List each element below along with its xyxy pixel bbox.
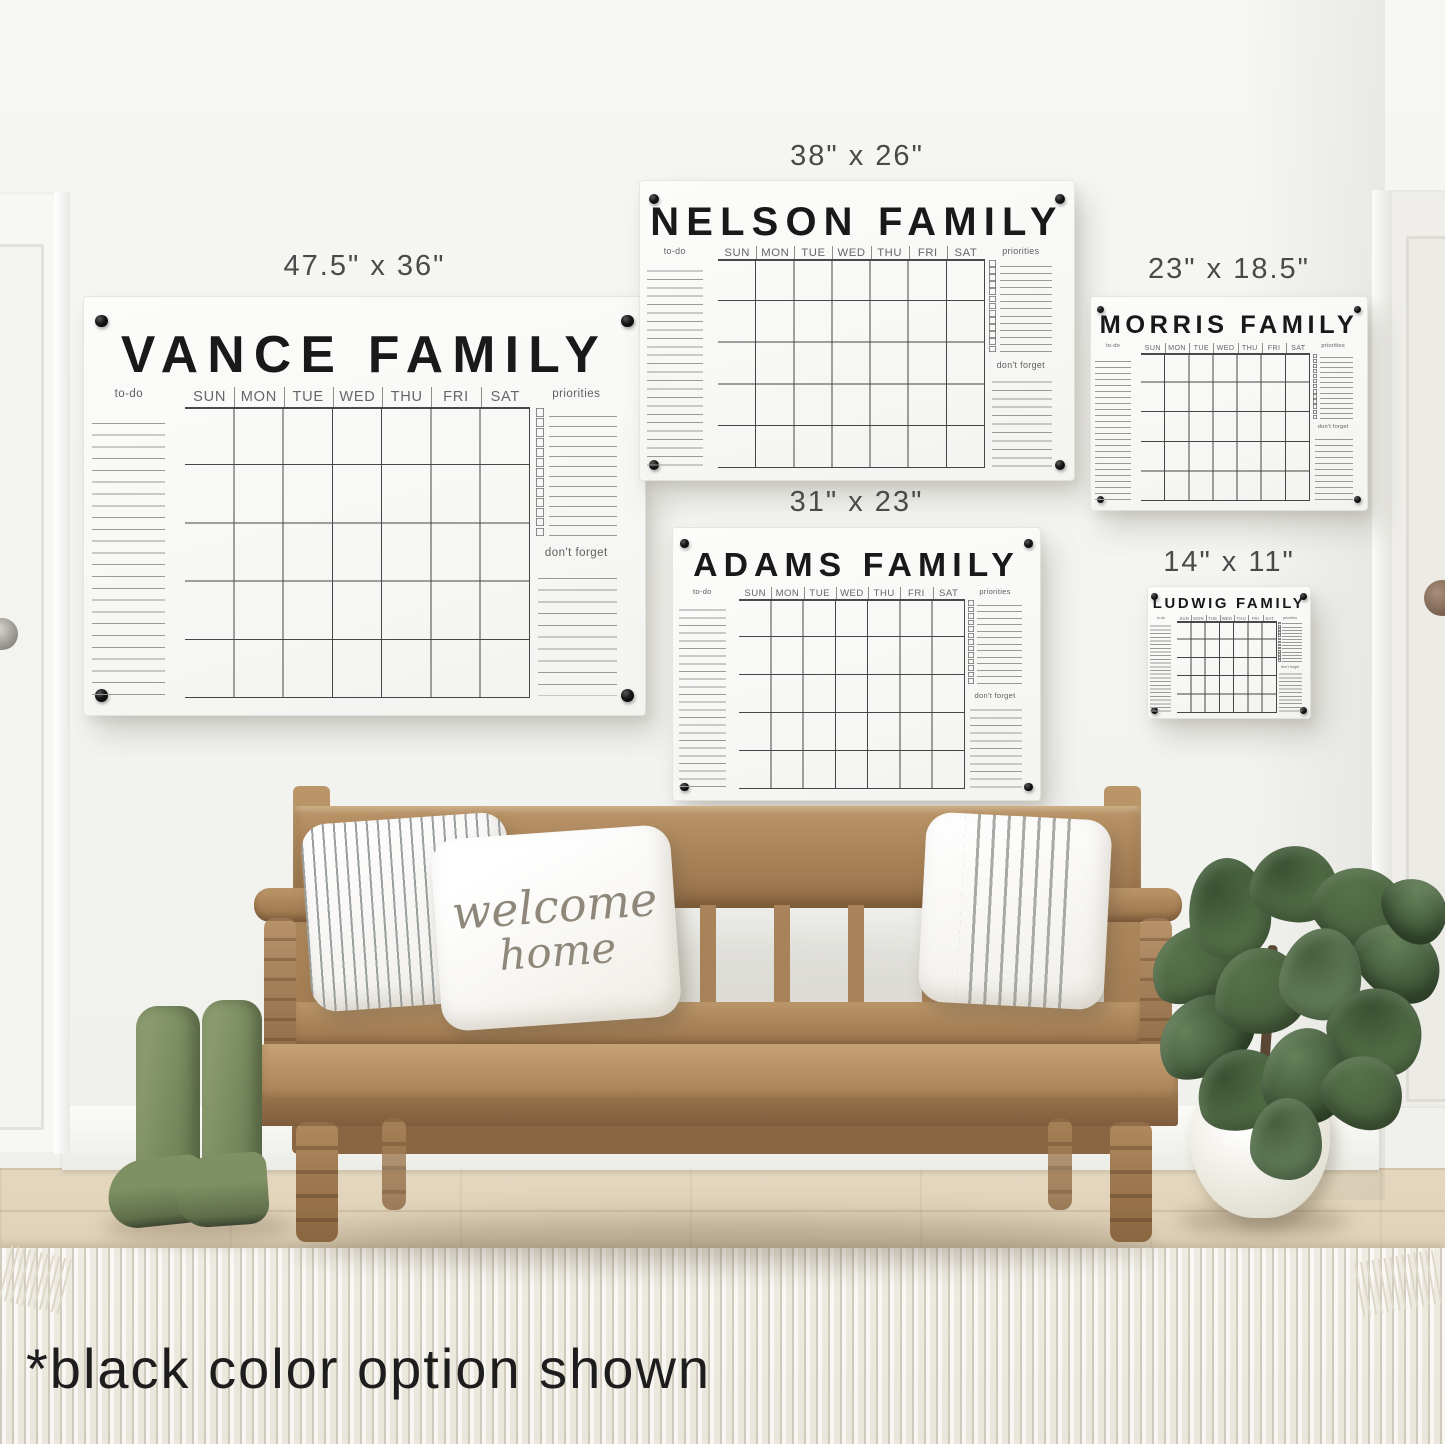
priority-row	[989, 275, 1052, 280]
checkbox-icon	[1313, 415, 1317, 419]
priority-row	[989, 283, 1052, 288]
priority-row	[536, 519, 617, 527]
checkbox-icon	[1278, 653, 1281, 656]
priority-line	[977, 611, 1021, 612]
priority-row	[536, 449, 617, 457]
priority-line	[549, 466, 617, 467]
checkbox-icon	[1313, 410, 1317, 414]
day-header-row: SUNMONTUEWEDTHUFRISAT	[1177, 616, 1277, 621]
day-label-tue: TUE	[284, 389, 333, 406]
calendar-board-vance: VANCE FAMILYto-doSUNMONTUEWEDTHUFRISATpr…	[84, 297, 645, 715]
checkbox-icon	[536, 428, 545, 437]
bench-apron	[292, 1122, 1142, 1154]
priority-row	[1313, 385, 1353, 389]
priority-row	[1278, 656, 1301, 658]
calendar-board-adams: ADAMS FAMILYto-doSUNMONTUEWEDTHUFRISATpr…	[673, 528, 1040, 800]
priority-row	[1278, 641, 1301, 643]
priority-row	[536, 459, 617, 467]
day-label-thu: THU	[871, 247, 909, 259]
day-label-wed: WED	[1213, 344, 1237, 353]
checkbox-icon	[1313, 359, 1317, 363]
day-label-sun: SUN	[1177, 616, 1191, 621]
checkbox-icon	[1313, 354, 1317, 358]
priority-line	[977, 618, 1021, 619]
priorities-label: priorities	[989, 246, 1052, 256]
priority-line	[1320, 418, 1353, 419]
size-label-morris: 23" x 18.5"	[1091, 253, 1367, 286]
priority-row	[968, 679, 1021, 684]
priority-row	[989, 333, 1052, 338]
day-label-thu: THU	[868, 588, 900, 599]
priority-row	[1313, 410, 1353, 414]
checkbox-icon	[536, 408, 545, 417]
day-label-sun: SUN	[1141, 344, 1165, 353]
checkbox-icon	[1313, 379, 1317, 383]
checkbox-icon	[968, 652, 974, 658]
bench-floor-shadow	[290, 1218, 1160, 1264]
priority-row	[968, 646, 1021, 651]
priority-line	[1320, 408, 1353, 409]
dont-forget-lines	[992, 374, 1053, 467]
day-label-fri: FRI	[909, 247, 947, 259]
priority-line	[1320, 413, 1353, 414]
todo-label: to-do	[92, 388, 165, 400]
checkbox-icon	[989, 281, 996, 288]
priority-row	[989, 340, 1052, 345]
checkbox-icon	[1313, 389, 1317, 393]
checkbox-icon	[968, 633, 974, 639]
dont-forget-lines	[538, 567, 617, 697]
day-label-mon: MON	[756, 247, 794, 259]
checkbox-icon	[1278, 631, 1281, 634]
priority-line	[549, 506, 617, 507]
todo-lines	[1150, 623, 1171, 712]
priority-row	[989, 261, 1052, 266]
checkbox-icon	[536, 488, 545, 497]
priority-line	[1000, 316, 1052, 317]
priority-line	[1000, 344, 1052, 345]
left-door-panel	[0, 244, 44, 1130]
priority-row	[989, 318, 1052, 323]
priorities-checklist	[1278, 622, 1301, 662]
priority-row	[1278, 635, 1301, 637]
priority-line	[1320, 398, 1353, 399]
day-label-sat: SAT	[947, 247, 985, 259]
checkbox-icon	[989, 338, 996, 345]
checkbox-icon	[536, 478, 545, 487]
bench-seat	[260, 1044, 1178, 1106]
priority-row	[1313, 395, 1353, 399]
day-label-mon: MON	[1191, 616, 1205, 621]
priority-line	[549, 426, 617, 427]
calendar-title: NELSON FAMILY	[640, 200, 1074, 245]
priority-row	[1278, 653, 1301, 655]
priority-line	[1000, 273, 1052, 274]
striped-pillow-right	[917, 811, 1113, 1010]
checkbox-icon	[968, 659, 974, 665]
checkbox-icon	[1313, 404, 1317, 408]
todo-label: to-do	[1150, 616, 1171, 620]
mount-screw-br	[1055, 460, 1065, 470]
day-label-fri: FRI	[1248, 616, 1262, 621]
priority-line	[977, 605, 1021, 606]
priority-row	[1278, 644, 1301, 646]
bench-lower-rail	[293, 1002, 1141, 1048]
checkbox-icon	[968, 678, 974, 684]
day-label-mon: MON	[771, 588, 803, 599]
priority-row	[1313, 369, 1353, 373]
day-label-mon: MON	[234, 389, 283, 406]
priorities-checklist	[968, 601, 1021, 684]
priority-row	[1278, 628, 1301, 630]
caption-text: *black color option shown	[26, 1336, 711, 1401]
calendar-board-morris: MORRIS FAMILYto-doSUNMONTUEWEDTHUFRISATp…	[1091, 297, 1367, 510]
checkbox-icon	[968, 620, 974, 626]
checkbox-icon	[536, 458, 545, 467]
priority-row	[536, 429, 617, 437]
priority-row	[968, 607, 1021, 612]
checkbox-icon	[989, 267, 996, 274]
priority-line	[977, 624, 1021, 625]
day-label-sun: SUN	[739, 588, 771, 599]
priority-row	[968, 614, 1021, 619]
priority-row	[968, 601, 1021, 606]
calendar-title: ADAMS FAMILY	[673, 546, 1040, 585]
month-grid	[718, 259, 985, 468]
checkbox-icon	[968, 639, 974, 645]
calendar-board-ludwig: LUDWIG FAMILYto-doSUNMONTUEWEDTHUFRISATp…	[1148, 587, 1310, 718]
checkbox-icon	[1313, 374, 1317, 378]
calendar-title: MORRIS FAMILY	[1091, 311, 1367, 340]
todo-lines	[679, 603, 727, 788]
priority-row	[536, 479, 617, 487]
calendar-title: LUDWIG FAMILY	[1148, 596, 1310, 612]
checkbox-icon	[989, 317, 996, 324]
day-label-tue: TUE	[1189, 344, 1213, 353]
priority-row	[1278, 660, 1301, 662]
checkbox-icon	[989, 324, 996, 331]
checkbox-icon	[1278, 641, 1281, 644]
priorities-label: priorities	[968, 587, 1021, 596]
checkbox-icon	[968, 607, 974, 613]
priority-row	[968, 627, 1021, 632]
priority-line	[549, 535, 617, 536]
day-label-sat: SAT	[933, 588, 965, 599]
rain-boot-right	[172, 1000, 292, 1236]
priority-row	[989, 311, 1052, 316]
day-label-sun: SUN	[718, 247, 756, 259]
dont-forget-label: don't forget	[536, 547, 617, 559]
priorities-label: priorities	[1313, 343, 1353, 349]
priority-line	[977, 650, 1021, 651]
dont-forget-lines	[1279, 671, 1302, 712]
priority-row	[536, 499, 617, 507]
priorities-checklist	[1313, 354, 1353, 419]
priority-row	[1278, 650, 1301, 652]
priority-row	[536, 489, 617, 497]
priority-line	[549, 525, 617, 526]
pillow-text-home: home	[498, 926, 618, 978]
priority-line	[1320, 377, 1353, 378]
checkbox-icon	[1313, 394, 1317, 398]
priority-line	[977, 657, 1021, 658]
checkbox-icon	[536, 438, 545, 447]
checkbox-icon	[536, 418, 545, 427]
priority-line	[549, 476, 617, 477]
priority-row	[1313, 405, 1353, 409]
priority-row	[1313, 354, 1353, 358]
checkbox-icon	[1278, 622, 1281, 625]
priority-line	[1000, 280, 1052, 281]
day-label-sat: SAT	[481, 389, 530, 406]
todo-lines	[647, 263, 703, 466]
product-photo-scene: 47.5" x 36"VANCE FAMILYto-doSUNMONTUEWED…	[0, 0, 1445, 1444]
priority-row	[1313, 415, 1353, 419]
priority-row	[989, 325, 1052, 330]
month-grid	[185, 407, 530, 699]
day-header-row: SUNMONTUEWEDTHUFRISAT	[718, 247, 985, 259]
day-label-sun: SUN	[185, 389, 234, 406]
priority-line	[1320, 357, 1353, 358]
priority-row	[536, 439, 617, 447]
checkbox-icon	[1278, 638, 1281, 641]
day-label-tue: TUE	[1206, 616, 1220, 621]
priorities-label: priorities	[536, 388, 617, 400]
day-label-mon: MON	[1165, 344, 1189, 353]
mount-screw-br	[1354, 496, 1361, 503]
priority-line	[1320, 382, 1353, 383]
mount-screw-br	[621, 689, 634, 702]
checkbox-icon	[968, 646, 974, 652]
day-label-tue: TUE	[804, 588, 836, 599]
priority-row	[1278, 625, 1301, 627]
checkbox-icon	[968, 613, 974, 619]
priority-line	[1320, 372, 1353, 373]
day-label-thu: THU	[1234, 616, 1248, 621]
checkbox-icon	[1278, 656, 1281, 659]
day-header-row: SUNMONTUEWEDTHUFRISAT	[185, 389, 530, 406]
checkbox-icon	[989, 260, 996, 267]
priority-row	[536, 419, 617, 427]
dont-forget-lines	[970, 703, 1021, 787]
day-header-row: SUNMONTUEWEDTHUFRISAT	[739, 588, 965, 599]
dont-forget-label: don't forget	[1278, 665, 1301, 669]
priority-row	[989, 290, 1052, 295]
priority-row	[536, 409, 617, 417]
todo-label: to-do	[679, 587, 727, 596]
calendar-board-nelson: NELSON FAMILYto-doSUNMONTUEWEDTHUFRISATp…	[640, 181, 1074, 480]
priority-row	[1313, 390, 1353, 394]
priority-line	[549, 416, 617, 417]
checkbox-icon	[1313, 364, 1317, 368]
priority-line	[549, 456, 617, 457]
priority-line	[977, 631, 1021, 632]
todo-label: to-do	[647, 246, 703, 256]
priority-line	[549, 436, 617, 437]
day-label-sat: SAT	[1263, 616, 1277, 621]
checkbox-icon	[1313, 384, 1317, 388]
month-grid	[1141, 353, 1311, 502]
checkbox-icon	[1278, 634, 1281, 637]
checkbox-icon	[1278, 644, 1281, 647]
checkbox-icon	[989, 296, 996, 303]
todo-lines	[1095, 356, 1131, 501]
dont-forget-lines	[1315, 434, 1354, 500]
checkbox-icon	[536, 508, 545, 517]
day-header-row: SUNMONTUEWEDTHUFRISAT	[1141, 344, 1311, 353]
priority-row	[536, 529, 617, 537]
dont-forget-label: don't forget	[989, 360, 1052, 370]
boot-foot	[174, 1151, 271, 1229]
checkbox-icon	[968, 600, 974, 606]
priority-line	[549, 446, 617, 447]
checkbox-icon	[1313, 399, 1317, 403]
day-label-wed: WED	[333, 389, 382, 406]
checkbox-icon	[1278, 659, 1281, 662]
checkbox-icon	[536, 468, 545, 477]
priority-line	[977, 663, 1021, 664]
priority-line	[549, 486, 617, 487]
priority-row	[968, 640, 1021, 645]
dont-forget-label: don't forget	[968, 691, 1021, 700]
day-label-wed: WED	[832, 247, 870, 259]
checkbox-icon	[1278, 647, 1281, 650]
priority-line	[1000, 301, 1052, 302]
day-label-fri: FRI	[900, 588, 932, 599]
day-label-thu: THU	[1238, 344, 1262, 353]
priority-line	[1000, 308, 1052, 309]
priority-row	[968, 666, 1021, 671]
checkbox-icon	[536, 498, 545, 507]
welcome-home-pillow: welcome home	[430, 824, 683, 1032]
priority-row	[989, 268, 1052, 273]
priority-line	[549, 496, 617, 497]
checkbox-icon	[989, 274, 996, 281]
priorities-label: priorities	[1278, 616, 1301, 620]
left-door-casing	[54, 192, 70, 1154]
day-label-fri: FRI	[1262, 344, 1286, 353]
day-label-fri: FRI	[431, 389, 480, 406]
day-label-sat: SAT	[1286, 344, 1310, 353]
priority-line	[977, 676, 1021, 677]
priority-line	[1320, 362, 1353, 363]
dont-forget-label: don't forget	[1313, 424, 1353, 430]
priority-line	[1282, 661, 1302, 662]
priority-line	[1320, 403, 1353, 404]
priority-row	[1313, 379, 1353, 383]
priority-row	[989, 347, 1052, 352]
size-label-adams: 31" x 23"	[673, 486, 1040, 519]
priority-row	[1313, 359, 1353, 363]
priority-row	[989, 304, 1052, 309]
day-label-wed: WED	[1220, 616, 1234, 621]
priority-line	[977, 644, 1021, 645]
day-label-thu: THU	[382, 389, 431, 406]
priority-row	[1313, 400, 1353, 404]
checkbox-icon	[989, 288, 996, 295]
priority-line	[1000, 287, 1052, 288]
priority-line	[1320, 367, 1353, 368]
left-door	[0, 192, 70, 1154]
size-label-vance: 47.5" x 36"	[84, 250, 645, 283]
priority-line	[1000, 337, 1052, 338]
day-label-wed: WED	[836, 588, 868, 599]
checkbox-icon	[968, 665, 974, 671]
priority-line	[1000, 323, 1052, 324]
bench-leg-back-left	[382, 1118, 406, 1210]
priority-row	[1278, 622, 1301, 624]
priority-row	[968, 653, 1021, 658]
checkbox-icon	[989, 331, 996, 338]
priority-row	[536, 509, 617, 517]
month-grid	[1177, 621, 1277, 712]
checkbox-icon	[1278, 628, 1281, 631]
priority-row	[1278, 647, 1301, 649]
month-grid	[739, 599, 965, 789]
priority-line	[1000, 351, 1052, 352]
priority-line	[977, 637, 1021, 638]
todo-lines	[92, 412, 165, 696]
priority-line	[1320, 393, 1353, 394]
checkbox-icon	[536, 518, 545, 527]
bench-leg-front-left	[296, 1122, 338, 1242]
day-label-tue: TUE	[794, 247, 832, 259]
priority-row	[968, 620, 1021, 625]
checkbox-icon	[968, 626, 974, 632]
priority-row	[968, 633, 1021, 638]
bench-leg-back-right	[1048, 1118, 1072, 1210]
checkbox-icon	[968, 672, 974, 678]
todo-label: to-do	[1095, 343, 1131, 349]
priority-line	[1320, 387, 1353, 388]
checkbox-icon	[536, 528, 545, 537]
checkbox-icon	[536, 448, 545, 457]
priority-row	[1278, 631, 1301, 633]
priority-row	[1278, 638, 1301, 640]
priority-line	[549, 516, 617, 517]
fiddle-leaf-fig-plant	[1130, 840, 1420, 1240]
checkbox-icon	[1278, 650, 1281, 653]
priority-line	[1000, 266, 1052, 267]
size-label-nelson: 38" x 26"	[640, 140, 1074, 173]
priority-row	[989, 297, 1052, 302]
priority-row	[1313, 364, 1353, 368]
priority-line	[1000, 294, 1052, 295]
priorities-checklist	[989, 261, 1052, 352]
priority-line	[977, 683, 1021, 684]
priority-line	[977, 670, 1021, 671]
priority-row	[968, 659, 1021, 664]
priority-row	[968, 672, 1021, 677]
calendar-title: VANCE FAMILY	[84, 324, 645, 384]
priority-row	[536, 469, 617, 477]
checkbox-icon	[989, 303, 996, 310]
checkbox-icon	[989, 346, 996, 353]
priorities-checklist	[536, 409, 617, 536]
size-label-ludwig: 14" x 11"	[1148, 546, 1310, 579]
priority-row	[1313, 374, 1353, 378]
priority-line	[1000, 330, 1052, 331]
mount-screw-br	[1024, 783, 1032, 791]
checkbox-icon	[1313, 369, 1317, 373]
checkbox-icon	[989, 310, 996, 317]
checkbox-icon	[1278, 625, 1281, 628]
